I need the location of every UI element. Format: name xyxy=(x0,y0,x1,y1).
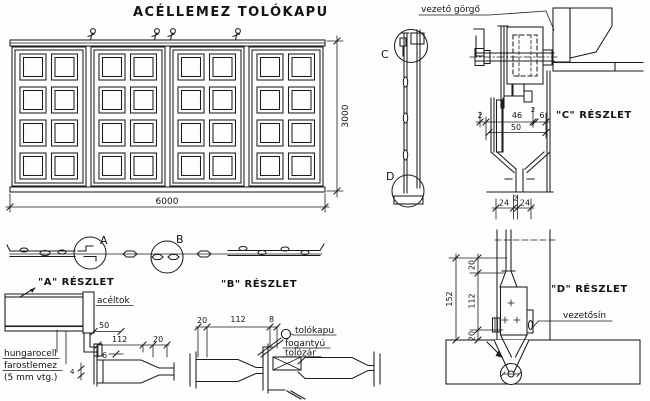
dim-20-bottom: 20 xyxy=(468,331,477,341)
technical-drawing: ACÉLLEMEZ TOLÓKAPU 3000 6000 xyxy=(0,0,650,401)
roller-hangers xyxy=(88,29,240,40)
joint-mark xyxy=(403,77,407,87)
gate-panel xyxy=(12,47,86,186)
joint-mark xyxy=(403,150,407,160)
detail-b-title: "B" RÉSZLET xyxy=(221,277,297,290)
ground-hatch xyxy=(446,340,640,384)
wall-lines xyxy=(5,294,83,331)
label-underline-leader xyxy=(533,321,612,327)
marker-a: A xyxy=(100,234,108,247)
dim-2-small: 2 xyxy=(531,106,535,114)
joint-a-profile xyxy=(78,246,96,261)
left-leaf-plan xyxy=(190,352,263,388)
dim-50-text: 50 xyxy=(511,123,521,132)
gate-panel xyxy=(91,47,165,186)
guide-shoe xyxy=(501,287,528,335)
dims-24-2-24: 24 2 24 xyxy=(492,195,534,220)
detail-a: "A" RÉSZLET acéltok 50 112 20 6 4 hungar… xyxy=(3,275,174,386)
label-tolokapu: tolókapu xyxy=(295,325,334,336)
plus-marks xyxy=(502,300,520,323)
detail-b: "B" RÉSZLET 20 112 8 tolókapu fogantyú t… xyxy=(190,277,380,399)
label-guide-rail: vezetősín xyxy=(563,311,606,321)
dim-24-right: 24 xyxy=(520,199,530,208)
page-title: ACÉLLEMEZ TOLÓKAPU xyxy=(133,4,329,20)
dim-line-112-20 xyxy=(97,345,169,357)
label-fogantyu: fogantyú xyxy=(285,339,325,349)
label-thickness: (5 mm vtg.) xyxy=(4,373,57,383)
dim-24-left: 24 xyxy=(499,199,509,208)
insulation-hatch xyxy=(5,297,83,326)
detail-circle-d xyxy=(392,175,424,207)
dim-152: 152 xyxy=(445,291,454,306)
gate-elevation xyxy=(10,29,325,192)
detail-c: 2 46 2 6 50 24 2 24 "C" RÉSZLET xyxy=(470,8,643,219)
roller-housing xyxy=(507,27,543,84)
dim-2-mid: 2 xyxy=(513,195,517,203)
dim-6: 6 xyxy=(102,351,107,360)
dim-2-left: 2 xyxy=(477,111,482,120)
panel-joint-lenses xyxy=(123,251,211,260)
dim-112: 112 xyxy=(112,335,127,344)
slab-band xyxy=(553,63,615,72)
height-dimension: 3000 xyxy=(327,36,351,197)
label-aceltok: acéltok xyxy=(97,295,131,306)
detail-d-title: "D" RÉSZLET xyxy=(551,282,628,295)
bracket-block xyxy=(513,84,524,96)
taper-and-stem xyxy=(487,152,553,192)
section-verticals xyxy=(402,30,420,193)
dim-50: 50 xyxy=(486,123,549,136)
label-farostlemez: farostlemez xyxy=(4,361,57,371)
dims-left: 152 20 112 20 xyxy=(445,254,507,343)
frame-profile xyxy=(84,333,98,358)
gate-panel xyxy=(170,47,244,186)
dim-112: 112 xyxy=(468,293,477,308)
detail-c-title: "C" RÉSZLET xyxy=(556,108,632,121)
gate-leaf-plan xyxy=(94,356,174,386)
label-guide-roller: vezető görgő xyxy=(421,5,480,15)
marker-c: C xyxy=(381,48,389,61)
dim-20: 20 xyxy=(197,316,207,325)
dim-3000: 3000 xyxy=(341,104,351,127)
ground-and-groove-lines xyxy=(446,340,640,372)
concrete-column xyxy=(553,8,570,62)
joint-mark xyxy=(403,113,407,123)
bottom-rail xyxy=(10,187,325,192)
bracket-profile xyxy=(504,84,532,102)
dim-lines xyxy=(196,327,278,357)
frame-verticals xyxy=(497,230,550,340)
dim-20-top: 20 xyxy=(468,260,477,270)
rail-slot xyxy=(529,321,533,330)
marker-d: D xyxy=(386,170,394,183)
marker-b: B xyxy=(176,233,184,246)
concrete-speckle xyxy=(570,8,612,58)
stem-profile xyxy=(500,230,517,287)
dim-6000: 6000 xyxy=(156,197,179,207)
handle-knob xyxy=(281,329,290,338)
dim-8: 8 xyxy=(269,315,274,324)
label-hungarocell: hungarocell xyxy=(4,349,57,359)
roller-hidden-lines xyxy=(519,35,531,76)
drawing-sheet: ACÉLLEMEZ TOLÓKAPU 3000 6000 xyxy=(0,0,650,401)
dim-4: 4 xyxy=(70,368,75,376)
board-layer xyxy=(5,327,83,332)
dim-46: 46 xyxy=(512,111,522,120)
width-dimension: 6000 xyxy=(6,194,329,212)
slab-lines xyxy=(553,63,643,72)
dim-20: 20 xyxy=(153,335,163,344)
detail-a-title: "A" RÉSZLET xyxy=(38,275,114,288)
nut xyxy=(543,50,552,65)
section-arrowhead xyxy=(30,288,36,293)
plan-strip: A B xyxy=(7,233,324,273)
roller-hidden xyxy=(513,35,537,76)
detail-d: 152 20 112 20 "D" RÉSZLET vezetősín xyxy=(445,230,640,385)
dim-6: 6 xyxy=(539,111,544,120)
steel-frame-section xyxy=(83,292,94,333)
dim-50: 50 xyxy=(99,321,109,330)
dim-112: 112 xyxy=(230,315,245,324)
roller-mini xyxy=(400,38,406,56)
gate-panel xyxy=(249,47,323,186)
latch-box-cross xyxy=(273,357,301,370)
